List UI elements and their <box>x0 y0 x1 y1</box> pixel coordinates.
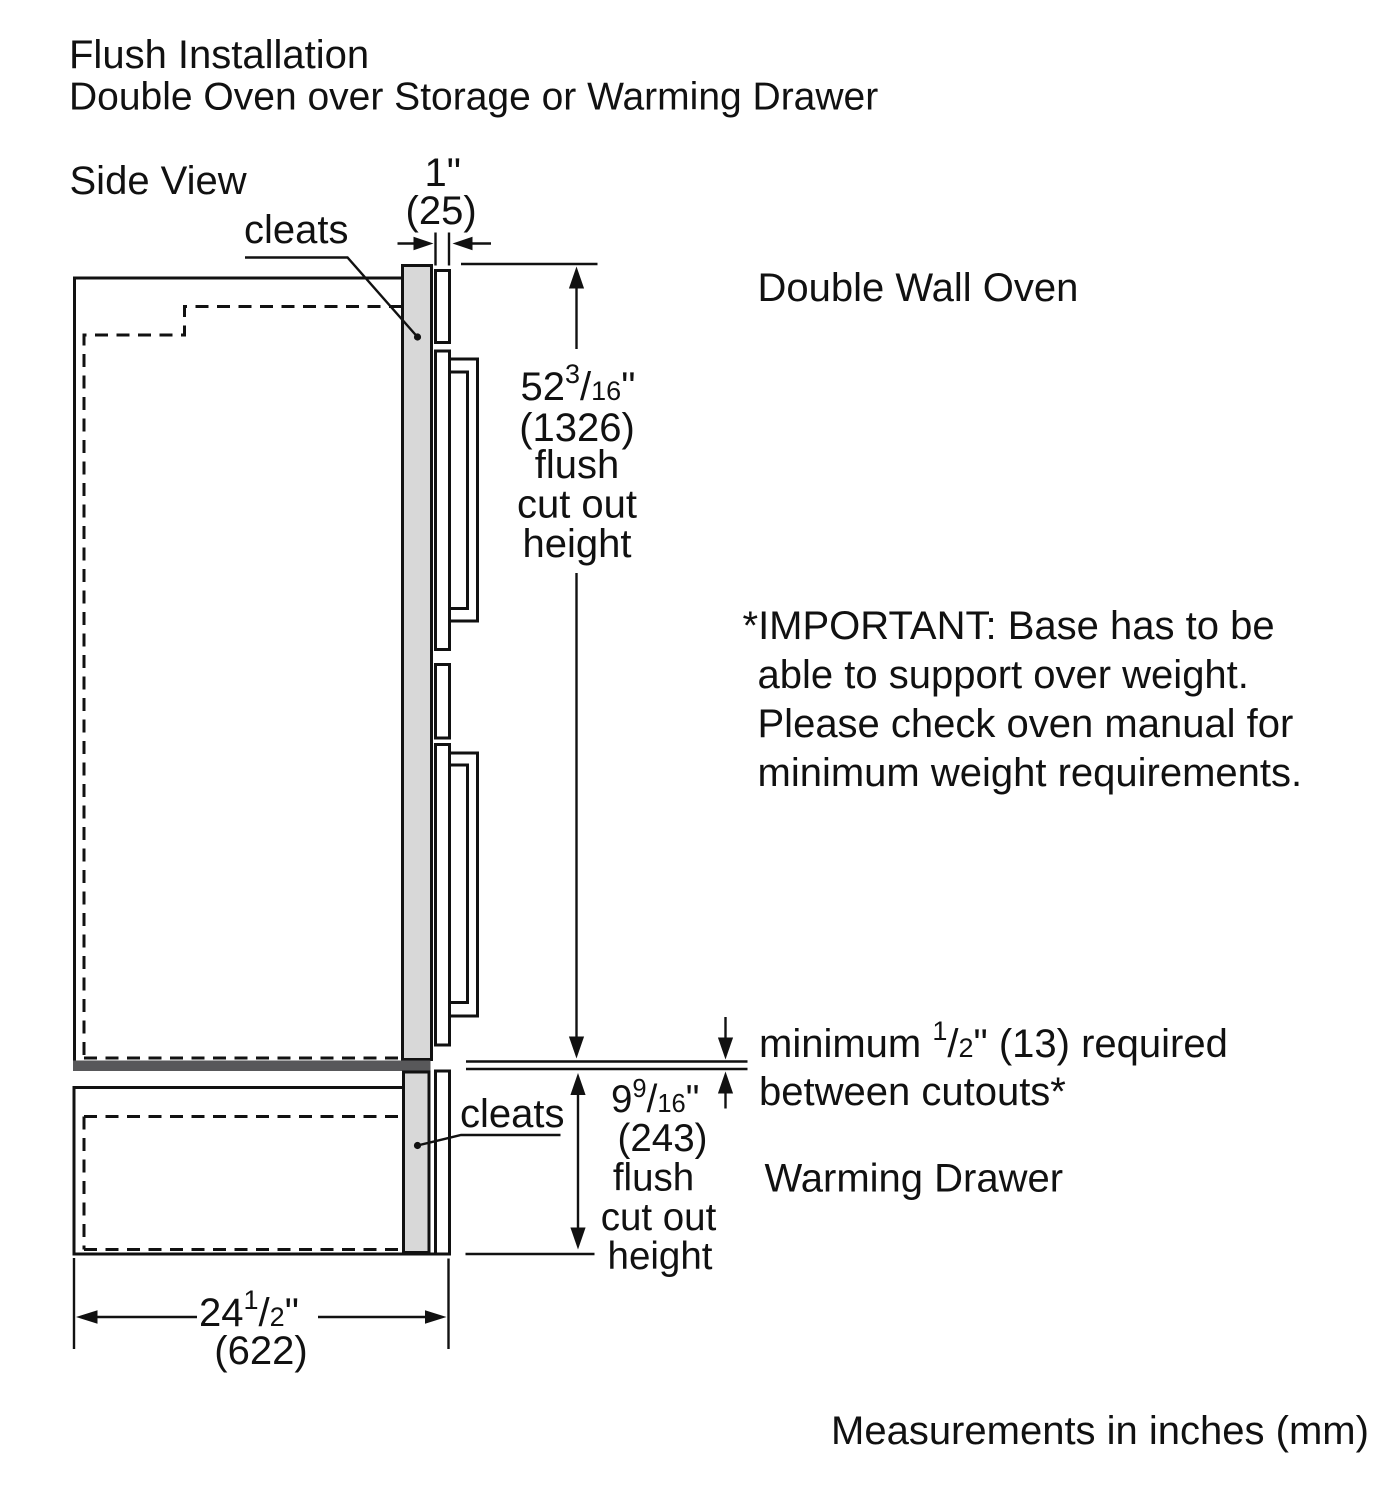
svg-text:Flush Installation: Flush Installation <box>69 33 369 77</box>
svg-text:(622): (622) <box>214 1329 307 1373</box>
svg-text:Double Oven over Storage or Wa: Double Oven over Storage or Warming Draw… <box>69 76 878 119</box>
svg-text:Double Wall Oven: Double Wall Oven <box>758 266 1079 310</box>
svg-text:Please check oven manual for: Please check oven manual for <box>758 702 1294 746</box>
svg-text:minimum 1/2" (13) required: minimum 1/2" (13) required <box>759 1016 1228 1066</box>
svg-text:Warming Drawer: Warming Drawer <box>765 1157 1064 1201</box>
svg-text:*IMPORTANT: Base has to be: *IMPORTANT: Base has to be <box>743 604 1275 648</box>
svg-text:height: height <box>608 1235 713 1278</box>
svg-text:99/16": 99/16" <box>611 1075 699 1121</box>
svg-text:minimum weight requirements.: minimum weight requirements. <box>758 751 1303 795</box>
svg-text:height: height <box>523 522 632 566</box>
svg-text:(243): (243) <box>618 1117 708 1160</box>
svg-text:Side View: Side View <box>70 159 247 203</box>
svg-text:cleats: cleats <box>460 1092 565 1136</box>
svg-text:(25): (25) <box>406 189 477 233</box>
svg-text:cleats: cleats <box>244 208 349 252</box>
svg-text:between cutouts*: between cutouts* <box>759 1070 1066 1114</box>
svg-text:flush: flush <box>613 1157 694 1200</box>
svg-text:cut out: cut out <box>517 483 637 527</box>
svg-text:Measurements in inches (mm): Measurements in inches (mm) <box>831 1409 1369 1453</box>
svg-text:flush: flush <box>535 443 620 487</box>
svg-text:able to support over weight.: able to support over weight. <box>758 653 1249 697</box>
svg-text:cut out: cut out <box>601 1196 717 1239</box>
